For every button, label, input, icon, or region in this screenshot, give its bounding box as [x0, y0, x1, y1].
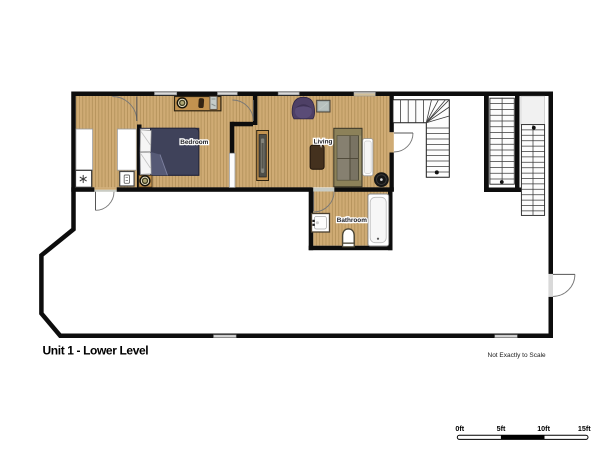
svg-text:Bathroom: Bathroom [337, 217, 367, 224]
svg-text:15ft: 15ft [578, 424, 591, 433]
svg-text:Bedroom: Bedroom [180, 139, 208, 146]
svg-text:Not Exactly to Scale: Not Exactly to Scale [488, 352, 547, 359]
svg-text:5ft: 5ft [497, 424, 506, 433]
svg-text:Unit 1 - Lower Level: Unit 1 - Lower Level [43, 344, 149, 358]
svg-text:10ft: 10ft [537, 424, 550, 433]
svg-text:0ft: 0ft [455, 424, 464, 433]
svg-text:Living: Living [314, 139, 333, 146]
